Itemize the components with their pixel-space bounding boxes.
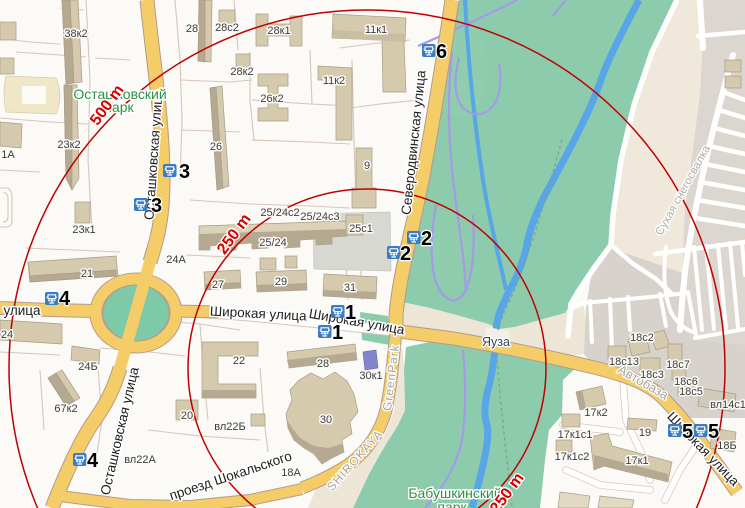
- svg-text:23к2: 23к2: [57, 139, 80, 151]
- svg-text:20: 20: [181, 410, 193, 422]
- svg-text:26: 26: [210, 141, 222, 153]
- svg-text:9: 9: [364, 160, 370, 172]
- svg-text:17к1с2: 17к1с2: [555, 451, 590, 463]
- svg-text:27: 27: [212, 279, 224, 291]
- svg-text:28с2: 28с2: [215, 22, 239, 34]
- svg-text:28: 28: [186, 23, 198, 35]
- svg-text:17к1с1: 17к1с1: [558, 429, 593, 441]
- svg-text:1А: 1А: [1, 149, 15, 161]
- svg-text:24А: 24А: [166, 254, 186, 266]
- svg-text:1: 1: [332, 322, 343, 344]
- svg-text:вл22Б: вл22Б: [214, 421, 245, 433]
- svg-text:67к2: 67к2: [54, 403, 77, 415]
- svg-text:18А: 18А: [281, 467, 301, 479]
- svg-text:4: 4: [59, 288, 71, 310]
- svg-text:18с2: 18с2: [630, 332, 654, 344]
- svg-text:19: 19: [639, 427, 651, 439]
- svg-text:25/24с3: 25/24с3: [300, 211, 339, 223]
- svg-text:38к2: 38к2: [64, 28, 87, 40]
- svg-text:парк: парк: [437, 499, 467, 508]
- svg-text:28к1: 28к1: [267, 25, 290, 37]
- svg-text:18Б: 18Б: [717, 440, 736, 452]
- svg-text:30: 30: [320, 414, 332, 426]
- svg-text:29: 29: [275, 276, 287, 288]
- svg-text:23к1: 23к1: [72, 224, 95, 236]
- svg-text:1: 1: [345, 302, 356, 324]
- svg-text:4: 4: [87, 450, 99, 472]
- svg-text:18с5: 18с5: [679, 386, 703, 398]
- svg-text:25с1: 25с1: [349, 223, 373, 235]
- svg-text:24: 24: [1, 329, 13, 341]
- svg-text:Яуза: Яуза: [482, 335, 510, 349]
- svg-text:вл14с1: вл14с1: [710, 399, 745, 411]
- svg-text:31: 31: [344, 282, 356, 294]
- svg-text:28к2: 28к2: [230, 66, 253, 78]
- svg-text:18с3: 18с3: [640, 369, 664, 381]
- svg-text:улица: улица: [3, 303, 41, 318]
- svg-text:22: 22: [233, 355, 245, 367]
- svg-text:вл22А: вл22А: [124, 454, 156, 466]
- svg-text:11к2: 11к2: [323, 75, 345, 87]
- svg-text:21: 21: [81, 268, 93, 280]
- svg-text:25/24: 25/24: [259, 237, 287, 249]
- svg-text:25/24с2: 25/24с2: [260, 207, 299, 219]
- svg-text:11к1: 11к1: [365, 24, 387, 36]
- svg-text:18с7: 18с7: [666, 359, 690, 371]
- svg-text:2: 2: [421, 228, 432, 250]
- svg-text:6: 6: [436, 41, 447, 63]
- svg-text:26к2: 26к2: [260, 93, 283, 105]
- svg-text:17к1: 17к1: [625, 455, 648, 467]
- svg-text:30к1: 30к1: [359, 370, 382, 382]
- svg-text:28: 28: [317, 358, 329, 370]
- svg-text:17к2: 17к2: [584, 407, 607, 419]
- svg-text:5: 5: [682, 421, 693, 443]
- svg-text:3: 3: [179, 161, 190, 183]
- svg-text:2: 2: [400, 243, 411, 265]
- svg-text:18с13: 18с13: [609, 356, 639, 368]
- svg-text:24Б: 24Б: [78, 361, 97, 373]
- svg-text:5: 5: [708, 421, 719, 443]
- svg-text:3: 3: [151, 195, 162, 217]
